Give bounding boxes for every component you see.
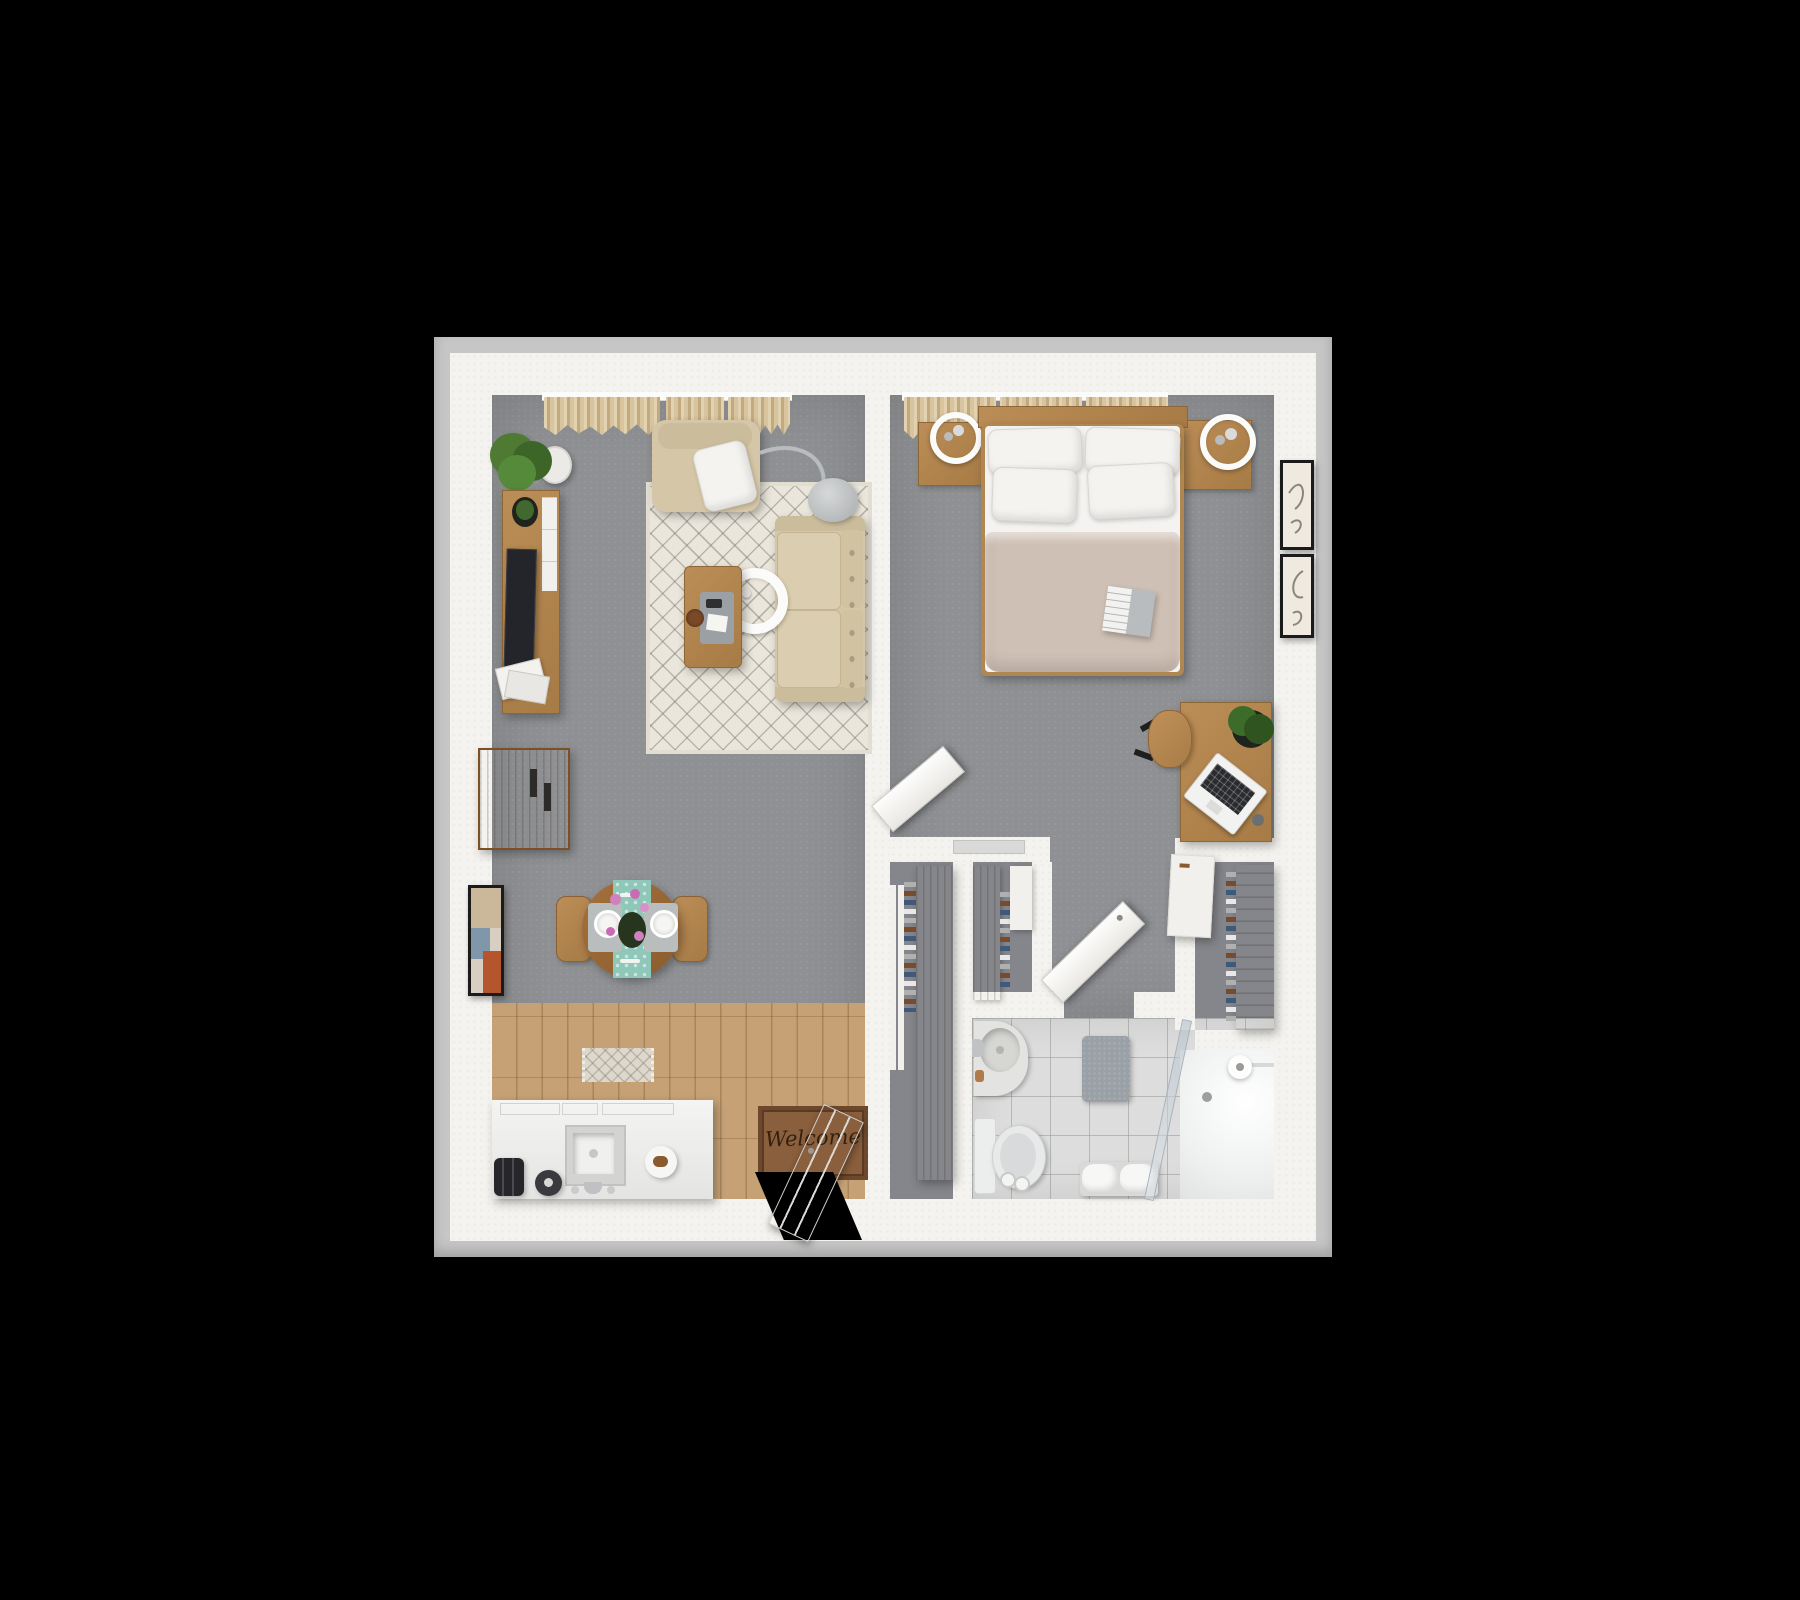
bedroom-wall-frame	[1280, 460, 1314, 550]
desk-plant	[1244, 714, 1274, 744]
shelf-clothes	[1226, 872, 1236, 1022]
plate	[650, 910, 678, 938]
white-card	[706, 614, 728, 633]
pink-flower	[634, 931, 644, 941]
bed-pillow	[1087, 462, 1176, 520]
magazine-on-bed	[1102, 585, 1156, 637]
counter-seam	[562, 1103, 598, 1115]
bar-cabinet	[478, 748, 570, 850]
shower-head	[1228, 1055, 1252, 1079]
cutlery	[620, 959, 640, 963]
living-curtains	[544, 397, 660, 435]
sofa-seat-cushion	[777, 610, 841, 688]
closet-wall-tray	[953, 840, 1025, 854]
floor-lamp-shade	[808, 478, 858, 522]
white-dresser	[1167, 854, 1215, 938]
lamp-bulb	[944, 432, 953, 441]
hanging-clothes	[1000, 892, 1010, 987]
sink-basin-round	[980, 1028, 1020, 1072]
potted-plant	[498, 455, 536, 491]
croissant	[653, 1156, 668, 1167]
tv-remote	[706, 599, 722, 608]
kitchen-small-rug	[582, 1048, 654, 1082]
bathroom-left-wall	[953, 1018, 972, 1199]
sofa-back-cushion	[841, 530, 863, 608]
toilet-paper-roll	[1014, 1176, 1030, 1192]
frame-art	[1283, 463, 1311, 547]
ring-lamp-left	[930, 412, 982, 464]
desk-chair	[1148, 710, 1192, 768]
art-block	[471, 888, 501, 928]
pink-flower	[606, 927, 615, 936]
art-block	[483, 951, 501, 993]
bath-mat	[1082, 1036, 1130, 1102]
cabinet-handle	[530, 769, 537, 797]
faucet-handle	[607, 1186, 615, 1194]
sink-drain	[589, 1149, 598, 1158]
shower-floor	[1180, 1050, 1274, 1199]
bath-faucet	[972, 1039, 984, 1057]
floor-plan: Welcome	[434, 337, 1332, 1257]
closet-separator-wall-1	[953, 862, 973, 992]
console-plant	[516, 500, 534, 520]
kitchen-sink	[565, 1125, 626, 1186]
hall-wardrobe	[916, 866, 953, 1180]
bathroom-top-wall-right	[1134, 992, 1175, 1018]
sofa-armrest	[775, 687, 865, 702]
kettle	[535, 1170, 562, 1196]
floor-drain	[1202, 1092, 1212, 1102]
dresser-handle	[1179, 863, 1189, 868]
desk-coaster	[1252, 814, 1264, 826]
door-handle	[807, 1147, 815, 1155]
shower-head-center	[1236, 1063, 1244, 1071]
door-handle	[1116, 914, 1124, 922]
shower-arm	[1250, 1063, 1274, 1067]
pink-flower	[640, 903, 649, 912]
wall-art-frame	[468, 885, 504, 996]
sink-drain	[996, 1046, 1004, 1054]
folded-towel	[1082, 1164, 1118, 1192]
counter-seam	[602, 1103, 674, 1115]
sliding-panel	[890, 885, 896, 1070]
console-drawers	[542, 497, 557, 591]
divider-wall-lower	[865, 823, 890, 1199]
lamp-bulb	[1215, 435, 1225, 445]
lamp-bulb	[953, 425, 964, 436]
shoe-shelf	[1236, 865, 1274, 1030]
pink-flower	[630, 889, 640, 899]
pendant-center	[742, 589, 751, 598]
mid-wardrobe	[973, 866, 1000, 1000]
shower-top-wall	[1195, 1030, 1274, 1050]
lamp-bulb	[1225, 428, 1237, 440]
pink-flower	[610, 894, 621, 905]
bathroom-top-wall-left	[953, 992, 1064, 1018]
bedroom-wall-frame	[1280, 554, 1314, 638]
scene: Welcome	[0, 0, 1800, 1600]
closet-storage-box	[1010, 866, 1032, 930]
ring-lamp-right	[1200, 414, 1256, 470]
kettle-lid	[544, 1178, 553, 1187]
bed-pillow	[991, 467, 1078, 524]
faucet-handle	[571, 1186, 579, 1194]
sofa-back-cushion	[841, 610, 863, 688]
frame-art	[1283, 557, 1311, 635]
flower-leaves	[618, 912, 646, 948]
sofa	[775, 516, 865, 702]
soap-bottle	[975, 1070, 984, 1082]
coaster	[686, 609, 704, 627]
hanging-clothes	[904, 882, 916, 1012]
toaster	[494, 1158, 524, 1196]
plate-with-croissant	[645, 1146, 677, 1178]
cabinet-handle	[544, 783, 551, 811]
counter-seam	[500, 1103, 560, 1115]
